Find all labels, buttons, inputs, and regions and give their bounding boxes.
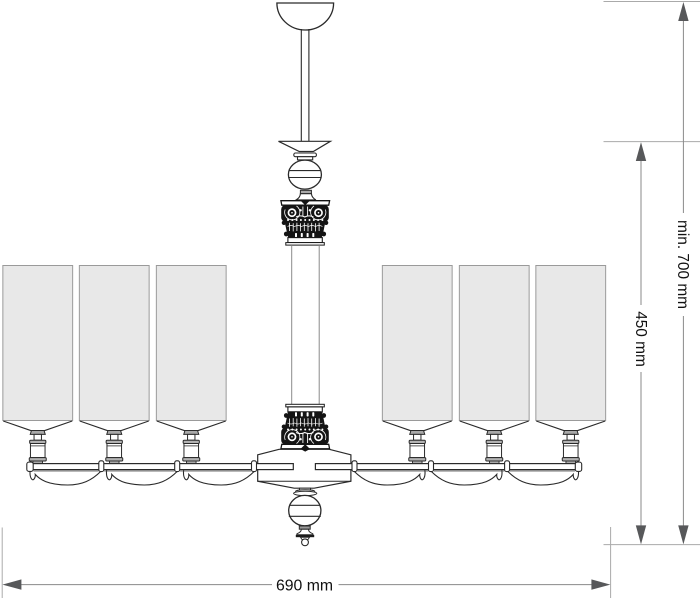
svg-text:min. 700 mm: min. 700 mm (674, 220, 691, 309)
svg-text:690 mm: 690 mm (276, 577, 333, 594)
svg-text:450 mm: 450 mm (632, 311, 649, 367)
